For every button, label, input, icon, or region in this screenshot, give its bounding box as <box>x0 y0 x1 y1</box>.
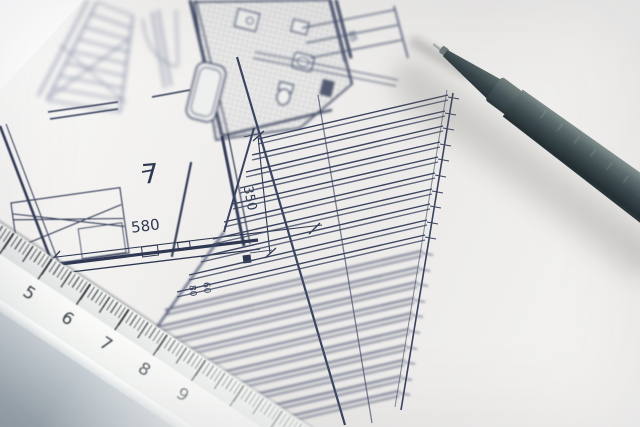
top-wall <box>48 90 190 119</box>
staircase <box>38 0 178 112</box>
dim-small-b-label: 60 <box>200 282 211 295</box>
bathroom <box>184 0 352 140</box>
dim-small-a-label: 80 <box>186 285 197 298</box>
photo-of-floor-plan: 85 <box>0 0 640 427</box>
dim-main-label: 580 <box>130 215 161 236</box>
room-number-label: 7 <box>140 158 160 190</box>
